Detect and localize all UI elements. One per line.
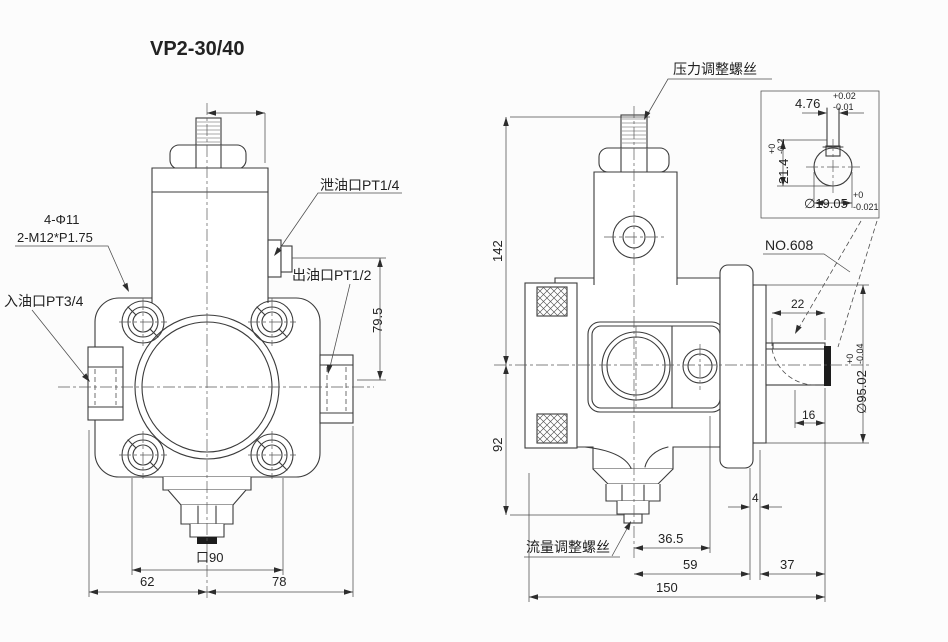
dim-95-02-tol-upper: +0 bbox=[845, 354, 855, 364]
dim-36-5: 36.5 bbox=[658, 531, 683, 546]
flow-screw-label: 流量调整螺丝 bbox=[526, 539, 610, 555]
dim-79-5: 79.5 bbox=[370, 308, 385, 333]
dim-4: 4 bbox=[752, 491, 759, 505]
drain-port-boss bbox=[268, 240, 292, 277]
dim-square-90: 口90 bbox=[196, 550, 223, 565]
detail-dim-key-width: 4.76 +0.02 -0.01 bbox=[795, 91, 864, 116]
dim-92: 92 bbox=[490, 438, 505, 452]
dim-4-76: 4.76 bbox=[795, 96, 820, 111]
dim-95-02-tol-lower: -0.04 bbox=[855, 343, 865, 364]
dim-19-05-tol-lower: -0.021 bbox=[853, 202, 879, 212]
spring-housing-side bbox=[594, 172, 677, 285]
spring-cap-front bbox=[152, 168, 268, 303]
pilot-boss bbox=[753, 285, 766, 443]
mounting-flange bbox=[525, 283, 577, 448]
dim-21-4: 21.4 bbox=[776, 159, 791, 184]
pressure-screw-label: 压力调整螺丝 bbox=[673, 61, 757, 77]
drive-shaft bbox=[766, 343, 831, 386]
bolt-spec-line2: 2-M12*P1.75 bbox=[17, 230, 93, 245]
dim-62: 62 bbox=[140, 574, 154, 589]
detail-dim-shaft-dia: ∅19.05 +0 -0.021 bbox=[804, 172, 879, 212]
dim-4-76-tol-lower: -0.01 bbox=[833, 102, 854, 112]
dim-21-4-tol-lower: -0.2 bbox=[776, 138, 786, 154]
detail-view: 4.76 +0.02 -0.01 21.4 +0 -0.2 ∅19.05 +0 … bbox=[761, 91, 879, 347]
port-face-block bbox=[588, 322, 724, 412]
bolt-spec-line1: 4-Φ11 bbox=[44, 212, 79, 227]
detail-dim-key-height: 21.4 +0 -0.2 bbox=[767, 138, 833, 186]
dim-59: 59 bbox=[683, 557, 697, 572]
dim-19-05: ∅19.05 bbox=[804, 196, 848, 211]
front-view: 79.5 口90 62 78 4-Φ11 2-M12*P1.75 入油口PT3/… bbox=[4, 103, 402, 599]
dim-95-02: ∅95.02 bbox=[854, 370, 869, 414]
drain-port-label: 泄油口PT1/4 bbox=[320, 177, 400, 193]
dim-19-05-tol-upper: +0 bbox=[853, 190, 863, 200]
dim-78: 78 bbox=[272, 574, 286, 589]
dim-4-76-tol-upper: +0.02 bbox=[833, 91, 856, 101]
bearing-number-label: NO.608 bbox=[765, 237, 813, 253]
dim-37: 37 bbox=[780, 557, 794, 572]
pump-drawing-svg: VP2-30/40 bbox=[0, 0, 948, 642]
inlet-port-boss bbox=[88, 347, 123, 420]
side-view: 142 92 22 ∅95.02 +0 -0.04 16 bbox=[490, 61, 872, 602]
drawing-title: VP2-30/40 bbox=[150, 38, 245, 60]
drawing-sheet: VP2-30/40 bbox=[0, 0, 948, 642]
inlet-port-label: 入油口PT3/4 bbox=[4, 293, 84, 309]
dim-142: 142 bbox=[490, 240, 505, 262]
dim-150: 150 bbox=[656, 580, 678, 595]
dim-16: 16 bbox=[802, 408, 816, 422]
pressure-screw-front bbox=[170, 118, 246, 169]
rear-cover bbox=[720, 265, 753, 468]
outlet-port-boss bbox=[320, 355, 353, 423]
dim-22: 22 bbox=[791, 297, 805, 311]
outlet-port-label: 出油口PT1/2 bbox=[292, 267, 372, 283]
